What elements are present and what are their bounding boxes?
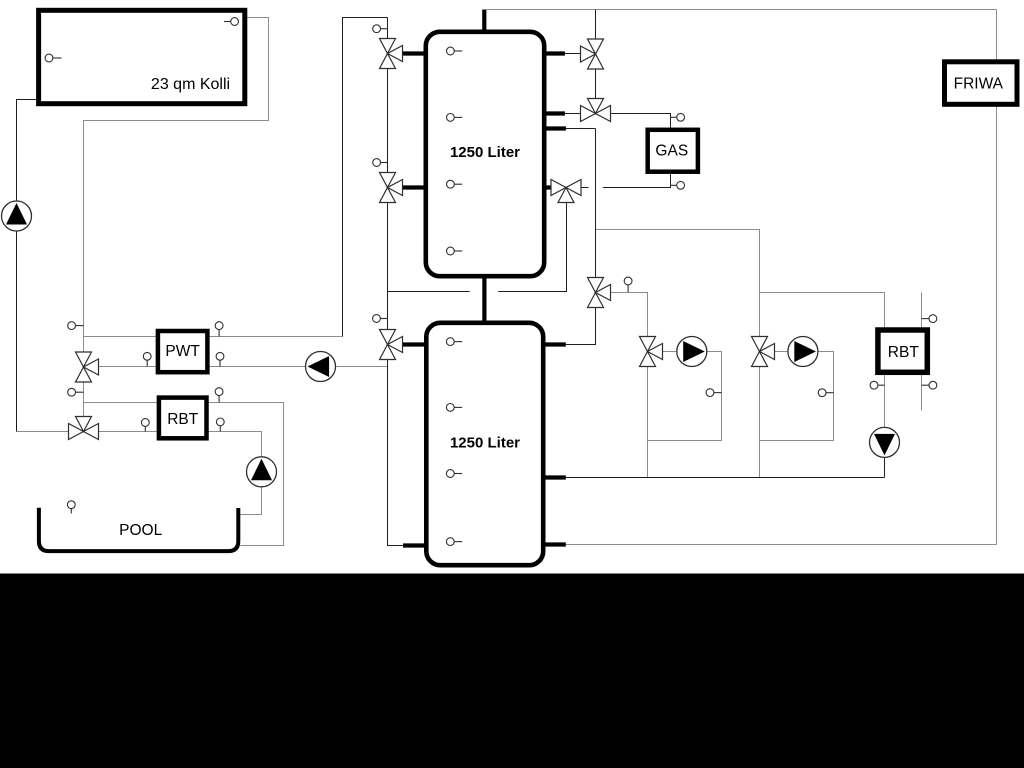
svg-text:RBT: RBT [167,411,199,428]
svg-text:GAS: GAS [655,142,688,159]
svg-text:23 qm Kolli: 23 qm Kolli [151,76,230,93]
svg-text:RBT: RBT [888,344,920,361]
svg-text:1250 Liter: 1250 Liter [450,434,520,451]
svg-text:FRIWA: FRIWA [954,75,1004,92]
svg-text:1250 Liter: 1250 Liter [450,144,520,161]
svg-text:PWT: PWT [165,343,200,360]
svg-text:POOL: POOL [119,522,162,539]
